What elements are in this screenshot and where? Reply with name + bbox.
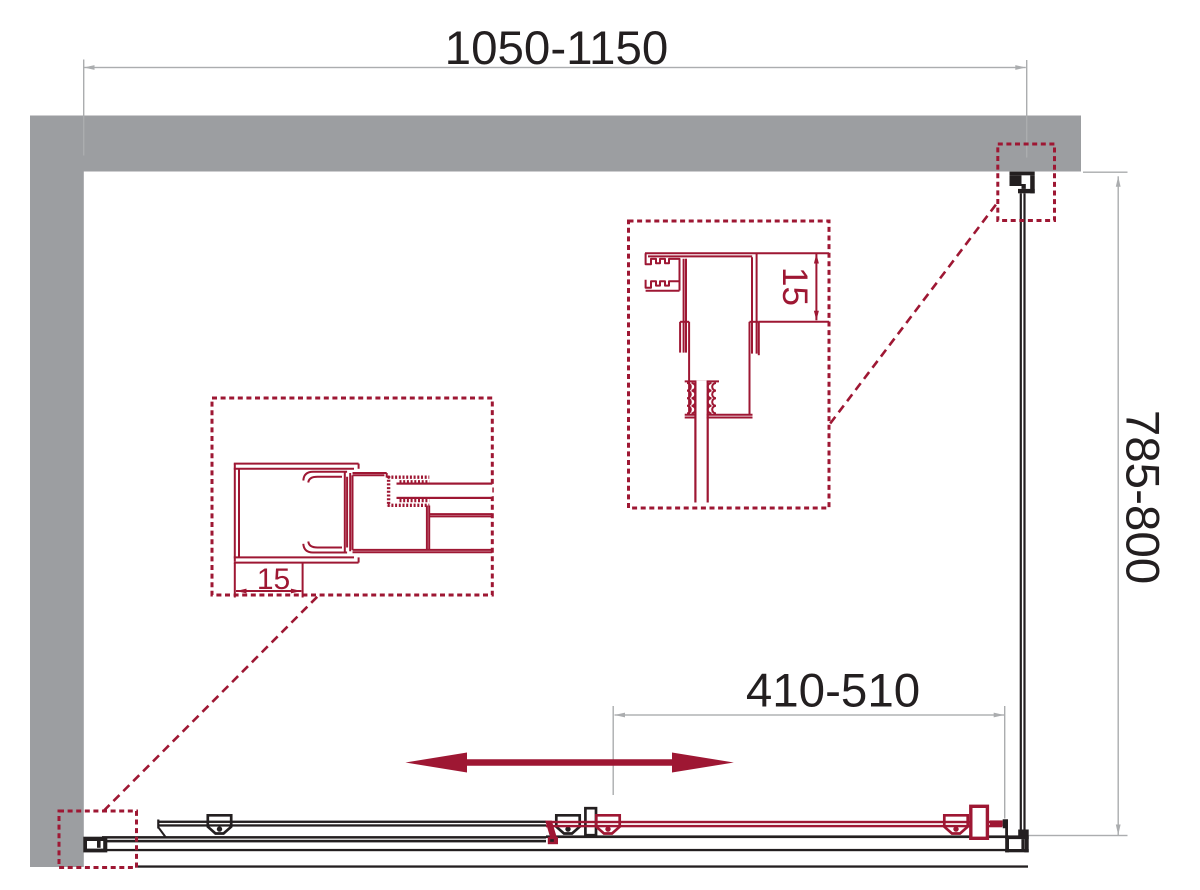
svg-text:1050-1150: 1050-1150 — [445, 22, 669, 75]
svg-text:15: 15 — [257, 563, 290, 596]
svg-text:785-800: 785-800 — [1116, 410, 1169, 584]
svg-text:410-510: 410-510 — [746, 665, 920, 718]
svg-text:15: 15 — [775, 267, 814, 306]
